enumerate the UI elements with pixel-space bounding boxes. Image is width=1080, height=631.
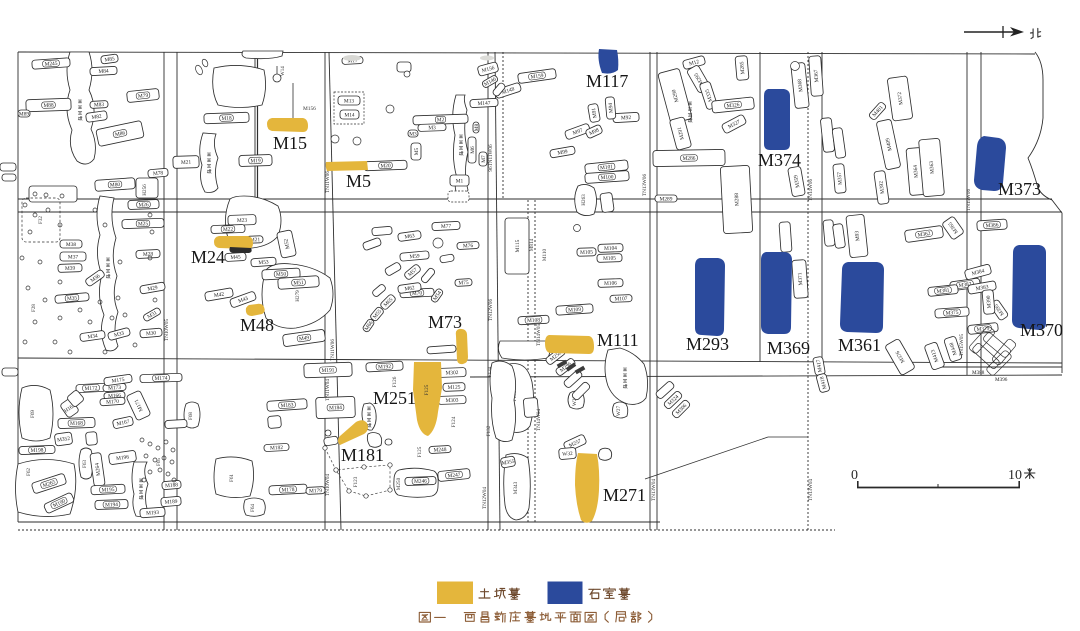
svg-text:M286: M286: [683, 156, 696, 162]
svg-text:H256: H256: [142, 184, 148, 196]
svg-text:M364: M364: [913, 164, 920, 178]
svg-text:M173: M173: [108, 385, 122, 392]
svg-text:F125: F125: [417, 446, 423, 457]
svg-text:M172: M172: [84, 385, 97, 392]
svg-text:M25: M25: [138, 221, 149, 227]
svg-text:M93: M93: [854, 230, 861, 241]
svg-text:M59: M59: [409, 253, 420, 260]
svg-text:M814: M814: [529, 238, 535, 251]
svg-text:M13: M13: [344, 98, 354, 104]
svg-text:M104: M104: [604, 246, 617, 252]
svg-text:F69: F69: [30, 410, 36, 418]
svg-text:F126: F126: [392, 376, 398, 387]
svg-text:M79: M79: [138, 93, 149, 100]
svg-text:M38: M38: [66, 242, 76, 248]
svg-text:M48: M48: [240, 315, 274, 335]
svg-text:M375: M375: [945, 310, 959, 317]
svg-text:M89: M89: [19, 111, 29, 117]
svg-text:M26: M26: [138, 202, 149, 208]
svg-text:TN13W06: TN13W06: [642, 174, 648, 197]
svg-text:F61: F61: [229, 474, 235, 482]
svg-text:M53: M53: [258, 259, 269, 266]
svg-text:M363: M363: [929, 160, 936, 174]
svg-text:M192: M192: [378, 364, 391, 371]
svg-text:M15: M15: [273, 133, 307, 153]
svg-text:F62: F62: [26, 468, 32, 476]
svg-text:M361: M361: [838, 335, 881, 355]
svg-text:M182: M182: [270, 445, 283, 452]
svg-text:F134: F134: [487, 366, 493, 377]
svg-text:F68: F68: [188, 412, 194, 420]
svg-text:TN11W06: TN11W06: [325, 171, 331, 193]
svg-text:M94: M94: [608, 102, 615, 113]
svg-text:TN14W04: TN14W04: [536, 409, 542, 432]
svg-text:0: 0: [851, 468, 858, 483]
svg-text:M106: M106: [604, 281, 617, 287]
svg-text:M83: M83: [94, 102, 105, 109]
svg-text:M371: M371: [797, 272, 804, 286]
svg-text:M188: M188: [165, 482, 179, 489]
svg-text:M14: M14: [344, 112, 354, 118]
svg-text:M184: M184: [329, 405, 342, 411]
svg-text:M51: M51: [293, 280, 304, 287]
svg-text:M181: M181: [341, 445, 384, 465]
svg-text:M105: M105: [603, 256, 616, 262]
svg-text:M245: M245: [44, 61, 58, 68]
svg-text:M248: M248: [433, 447, 446, 454]
svg-text:M8: M8: [474, 123, 480, 131]
svg-text:M147: M147: [477, 100, 490, 107]
svg-text:TN14W06: TN14W06: [808, 179, 814, 202]
svg-text:M373: M373: [998, 179, 1041, 199]
svg-text:M100: M100: [600, 174, 614, 181]
svg-text:M5: M5: [346, 171, 371, 191]
svg-text:M191: M191: [321, 368, 334, 374]
svg-text:M390: M390: [986, 295, 993, 309]
svg-text:M250: M250: [396, 477, 402, 490]
svg-text:M78: M78: [153, 170, 164, 177]
svg-text:M6: M6: [470, 146, 476, 154]
svg-text:M367: M367: [813, 69, 820, 83]
svg-text:M343: M343: [513, 481, 519, 494]
svg-text:M289: M289: [660, 196, 673, 202]
svg-text:M92: M92: [621, 115, 632, 122]
svg-text:M7: M7: [481, 155, 487, 163]
svg-text:TN14W05: TN14W05: [536, 324, 542, 347]
svg-text:M107: M107: [614, 296, 627, 302]
svg-text:TN12W06: TN12W06: [488, 299, 494, 322]
svg-text:M370: M370: [1020, 320, 1063, 340]
svg-text:M271: M271: [603, 485, 646, 505]
svg-text:F64: F64: [250, 504, 256, 512]
svg-text:M374: M374: [758, 150, 801, 170]
svg-text:F132: F132: [486, 425, 492, 436]
svg-text:TN11W06: TN11W06: [330, 339, 336, 361]
svg-text:M108: M108: [527, 317, 540, 324]
svg-text:M105: M105: [580, 250, 593, 256]
svg-text:W27: W27: [616, 406, 622, 416]
svg-text:F28: F28: [31, 304, 37, 312]
svg-text:M2: M2: [437, 117, 445, 123]
svg-text:M293: M293: [686, 334, 729, 354]
svg-text:W32: W32: [562, 451, 573, 458]
svg-text:M195: M195: [101, 487, 114, 494]
svg-text:F124: F124: [451, 416, 457, 427]
svg-text:F123: F123: [353, 476, 359, 487]
svg-text:M80: M80: [110, 182, 121, 189]
svg-text:F132: F132: [0, 0, 6, 2]
svg-text:M388: M388: [972, 370, 985, 376]
svg-text:TN12W04: TN12W04: [482, 487, 488, 510]
svg-text:M3: M3: [409, 131, 417, 137]
svg-text:M168: M168: [70, 421, 83, 427]
svg-text:M30: M30: [146, 330, 157, 337]
svg-text:TN13W04: TN13W04: [808, 479, 814, 502]
svg-text:TN13W04: TN13W04: [651, 479, 657, 502]
svg-text:M39: M39: [65, 266, 76, 272]
svg-text:M23: M23: [237, 218, 248, 224]
svg-text:M125: M125: [447, 385, 460, 391]
svg-text:M183: M183: [280, 402, 294, 409]
svg-text:F63: F63: [82, 460, 88, 468]
svg-text:M88: M88: [43, 103, 54, 109]
svg-text:M174: M174: [154, 376, 167, 382]
svg-text:M3: M3: [428, 125, 436, 131]
svg-text:TN11W04: TN11W04: [325, 379, 331, 401]
svg-text:M115: M115: [515, 239, 521, 252]
svg-text:F125: F125: [424, 384, 430, 395]
svg-text:TN15W06: TN15W06: [966, 189, 972, 212]
svg-text:M18: M18: [221, 116, 232, 122]
svg-text:M84: M84: [98, 69, 109, 76]
svg-text:M198: M198: [30, 448, 43, 454]
svg-text:M396: M396: [995, 377, 1008, 383]
svg-text:M110: M110: [542, 248, 548, 261]
svg-text:H279: H279: [295, 290, 301, 302]
svg-text:M303: M303: [445, 398, 458, 404]
svg-text:F32: F32: [38, 216, 44, 224]
svg-text:10: 10: [1008, 468, 1022, 483]
svg-text:M75: M75: [458, 280, 469, 287]
svg-text:M45: M45: [230, 255, 241, 262]
svg-text:M1: M1: [456, 178, 464, 184]
svg-text:M35: M35: [67, 295, 78, 302]
svg-text:M156: M156: [303, 106, 316, 112]
svg-text:M285: M285: [739, 61, 746, 75]
svg-text:M194: M194: [105, 502, 118, 508]
svg-text:M76: M76: [463, 243, 474, 250]
svg-text:M20: M20: [380, 163, 391, 169]
svg-text:M22: M22: [223, 227, 234, 233]
svg-text:M357: M357: [837, 171, 844, 185]
svg-text:F65: F65: [156, 458, 162, 466]
svg-text:M178: M178: [281, 487, 294, 494]
svg-text:TN10W04: TN10W04: [325, 474, 331, 497]
svg-text:W14: W14: [281, 66, 286, 76]
svg-text:M117: M117: [586, 71, 628, 91]
svg-text:M5: M5: [414, 147, 420, 155]
svg-text:M19: M19: [250, 158, 261, 164]
svg-text:M73: M73: [428, 312, 462, 332]
svg-text:96TN11W06: 96TN11W06: [488, 144, 494, 172]
svg-text:M50: M50: [276, 272, 287, 279]
svg-text:M21: M21: [181, 160, 192, 166]
svg-text:M179: M179: [309, 488, 322, 495]
svg-text:H263: H263: [581, 194, 587, 206]
svg-text:M24: M24: [191, 247, 225, 267]
svg-text:M109: M109: [568, 307, 582, 314]
svg-text:M288: M288: [734, 193, 741, 206]
svg-text:M77: M77: [441, 224, 452, 231]
svg-text:M189: M189: [164, 499, 178, 506]
svg-text:TN15W05: TN15W05: [959, 334, 965, 357]
svg-text:M369: M369: [767, 338, 810, 358]
svg-text:M246: M246: [414, 479, 427, 485]
svg-text:M302: M302: [445, 370, 458, 376]
svg-text:M111: M111: [597, 330, 639, 350]
svg-text:M170: M170: [106, 399, 120, 406]
svg-text:M251: M251: [373, 388, 416, 408]
svg-text:M386: M386: [985, 222, 999, 229]
svg-text:TN10W05: TN10W05: [164, 319, 170, 342]
svg-text:M37: M37: [68, 254, 78, 260]
svg-text:M193: M193: [146, 510, 160, 517]
